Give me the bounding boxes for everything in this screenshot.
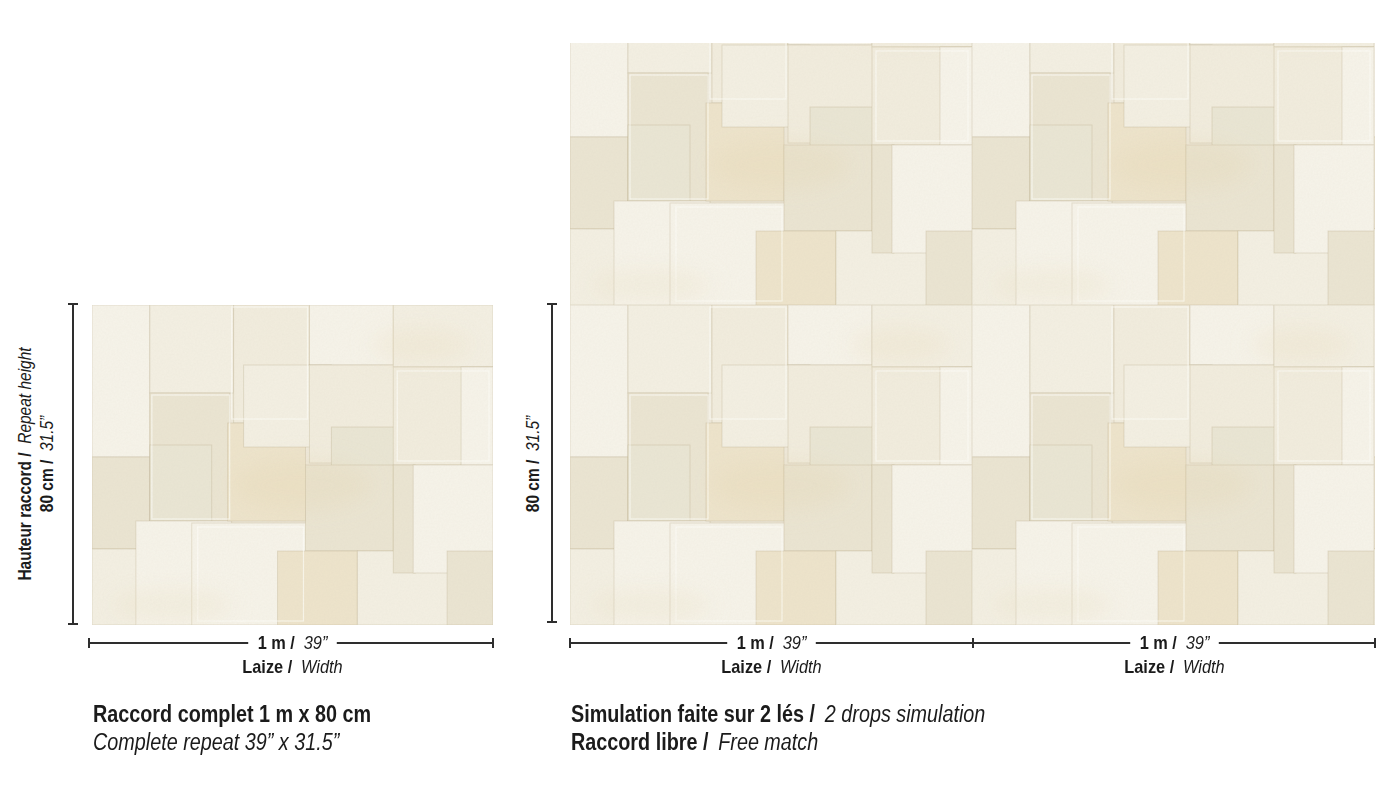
drop2-width-value-label: 1 m / 39” bbox=[1001, 633, 1348, 653]
simulation-height-label: 80 cm / 31.5” bbox=[522, 309, 544, 619]
repeat-figure-caption: Raccord complet 1 m x 80 cm Complete rep… bbox=[93, 700, 371, 756]
caption-french: Raccord complet 1 m x 80 cm bbox=[93, 700, 371, 728]
caption-line2: Raccord libre / Free match bbox=[571, 728, 985, 756]
two-drop-swatch-image bbox=[570, 43, 1375, 625]
simulation-figure-caption: Simulation faite sur 2 lés / 2 drops sim… bbox=[571, 700, 985, 756]
drop-divider-tick bbox=[972, 638, 974, 648]
simulation-height-value: 80 cm / 31.5” bbox=[522, 309, 544, 619]
repeat-swatch-image bbox=[92, 305, 493, 625]
caption-line1: Simulation faite sur 2 lés / 2 drops sim… bbox=[571, 700, 985, 728]
width-value-label: 1 m / 39” bbox=[120, 633, 465, 653]
repeat-height-label: Hauteur raccord / Repeat height 80 cm / … bbox=[14, 309, 58, 619]
repeat-height-value: 80 cm / 31.5” bbox=[36, 309, 58, 619]
drop2-width-name-label: Laize / Width bbox=[1001, 657, 1348, 677]
height-dimension-line bbox=[547, 303, 557, 623]
height-dimension-line bbox=[68, 303, 78, 625]
caption-english: Complete repeat 39” x 31.5” bbox=[93, 728, 371, 756]
width-name-label: Laize / Width bbox=[120, 657, 465, 677]
wallpaper-repeat-spec: Hauteur raccord / Repeat height 80 cm / … bbox=[0, 0, 1400, 788]
drop1-width-name-label: Laize / Width bbox=[598, 657, 945, 677]
drop1-width-value-label: 1 m / 39” bbox=[598, 633, 945, 653]
repeat-height-name: Hauteur raccord / Repeat height bbox=[14, 309, 36, 619]
